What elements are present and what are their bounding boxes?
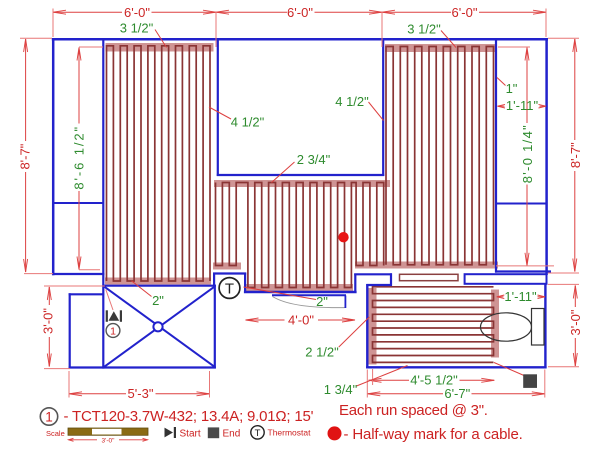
svg-text:6'-0": 6'-0" <box>452 5 478 20</box>
svg-text:5'-3": 5'-3" <box>128 386 154 401</box>
svg-text:3 1/2": 3 1/2" <box>407 21 441 36</box>
svg-text:8'-7": 8'-7" <box>17 143 32 169</box>
svg-text:2 1/2": 2 1/2" <box>305 344 339 359</box>
svg-text:Thermostat: Thermostat <box>268 428 312 438</box>
svg-text:1 3/4": 1 3/4" <box>324 382 358 397</box>
svg-text:2": 2" <box>152 293 164 308</box>
svg-text:Scale: Scale <box>46 429 65 438</box>
svg-text:- TCT120-3.7W-432; 13.4A; 9.01: - TCT120-3.7W-432; 13.4A; 9.01Ω; 15' <box>64 408 314 425</box>
svg-text:3'-0": 3'-0" <box>41 308 56 334</box>
svg-text:2": 2" <box>316 294 328 309</box>
svg-text:6'-0": 6'-0" <box>124 5 150 20</box>
svg-text:4'-0": 4'-0" <box>288 312 314 327</box>
svg-text:2 3/4": 2 3/4" <box>297 152 331 167</box>
svg-text:3 1/2": 3 1/2" <box>120 20 154 35</box>
svg-text:1: 1 <box>45 410 53 425</box>
svg-text:T: T <box>255 428 261 439</box>
svg-text:1": 1" <box>506 81 518 96</box>
svg-text:- Half-way mark for a cable.: - Half-way mark for a cable. <box>344 426 523 443</box>
svg-text:Each run spaced @ 3".: Each run spaced @ 3". <box>339 402 488 419</box>
svg-text:Start: Start <box>180 428 201 439</box>
svg-text:4 1/2": 4 1/2" <box>335 94 369 109</box>
svg-text:6'-0": 6'-0" <box>287 5 313 20</box>
svg-text:4 1/2": 4 1/2" <box>231 114 265 129</box>
svg-text:3'-0": 3'-0" <box>568 309 583 335</box>
svg-text:3'-0": 3'-0" <box>102 437 116 444</box>
svg-text:8'-0 1/4": 8'-0 1/4" <box>520 124 535 183</box>
svg-text:6'-7": 6'-7" <box>444 386 470 401</box>
svg-text:T: T <box>225 280 234 297</box>
svg-text:8'-7": 8'-7" <box>568 142 583 168</box>
svg-text:End: End <box>223 428 241 439</box>
svg-text:1'-11": 1'-11" <box>506 98 539 113</box>
svg-text:1: 1 <box>110 326 116 338</box>
svg-text:8'-6 1/2": 8'-6 1/2" <box>71 125 86 190</box>
svg-text:1'-11": 1'-11" <box>504 289 537 304</box>
